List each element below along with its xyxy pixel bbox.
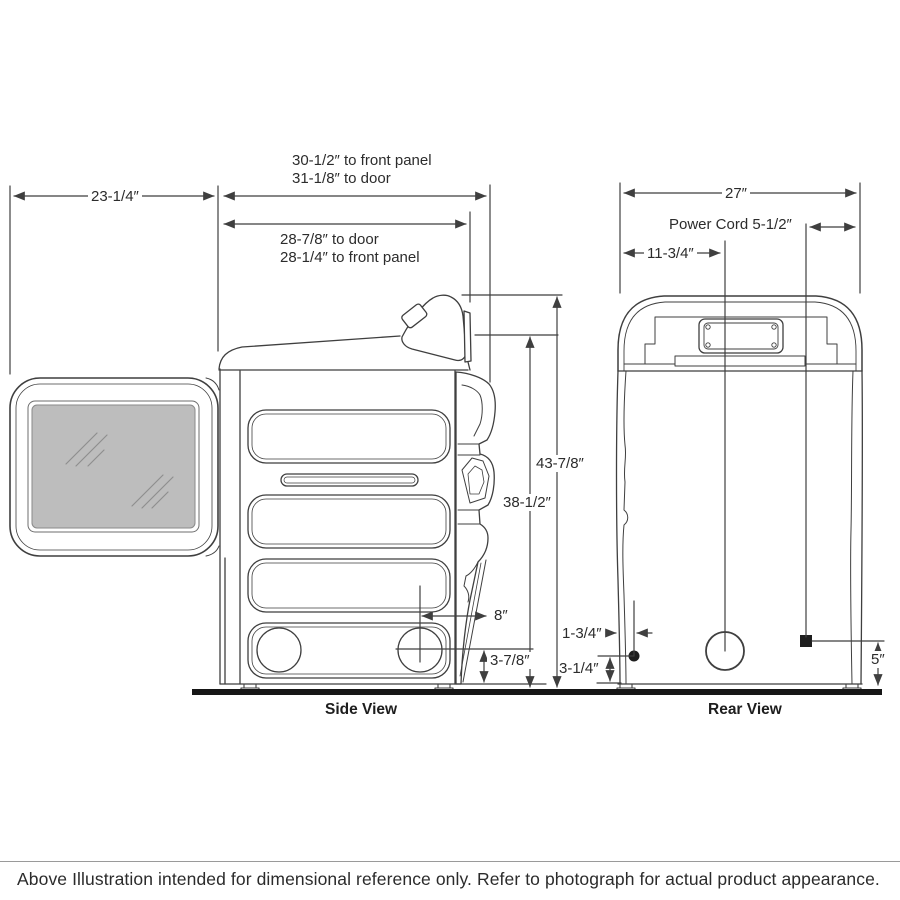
dim-cord-height: 5″ (868, 651, 888, 668)
dim-gas-offset: 1-3/4″ (562, 625, 602, 642)
floor-line (192, 689, 882, 695)
dim-power-cord: Power Cord 5-1/2″ (669, 216, 792, 233)
dim-height-total: 43-7/8″ (533, 455, 587, 472)
rear-view-drawing (617, 296, 863, 691)
dim-depth-total-panel: 30-1/2″ to front panel (292, 152, 432, 169)
open-door (10, 378, 219, 556)
dim-depth-door: 28-7/8″ to door (280, 231, 379, 248)
rear-cabinet (617, 371, 863, 684)
rear-console (618, 296, 862, 371)
side-console (401, 295, 471, 370)
footer-divider (0, 861, 900, 862)
dim-rear-width: 27″ (722, 185, 750, 202)
dim-height-cabinet: 38-1/2″ (500, 494, 554, 511)
door-glass (32, 405, 195, 528)
dimension-diagram-page: 30-1/2″ to front panel 31-1/8″ to door 2… (0, 0, 900, 900)
dim-gas-height: 3-1/4″ (559, 660, 599, 677)
side-view-drawing (10, 295, 495, 691)
dim-vent-height: 3-7/8″ (487, 652, 533, 669)
console-rear-panel (464, 311, 471, 362)
rear-window-outer (699, 319, 783, 353)
footnote-text: Above Illustration intended for dimensio… (17, 869, 887, 890)
technical-drawing (0, 0, 900, 900)
dim-vent-offset: 11-3/4″ (644, 245, 697, 262)
dim-vent-setback: 8″ (494, 607, 508, 624)
dim-depth-total-door: 31-1/8″ to door (292, 170, 391, 187)
dim-door-swing: 23-1/4″ (88, 188, 142, 205)
dim-depth-panel: 28-1/4″ to front panel (280, 249, 420, 266)
side-cabinet (219, 336, 468, 684)
side-view-title: Side View (325, 701, 397, 719)
side-foot-port-left (257, 628, 301, 672)
rear-view-title: Rear View (708, 701, 782, 719)
side-rear-duct (456, 372, 495, 684)
